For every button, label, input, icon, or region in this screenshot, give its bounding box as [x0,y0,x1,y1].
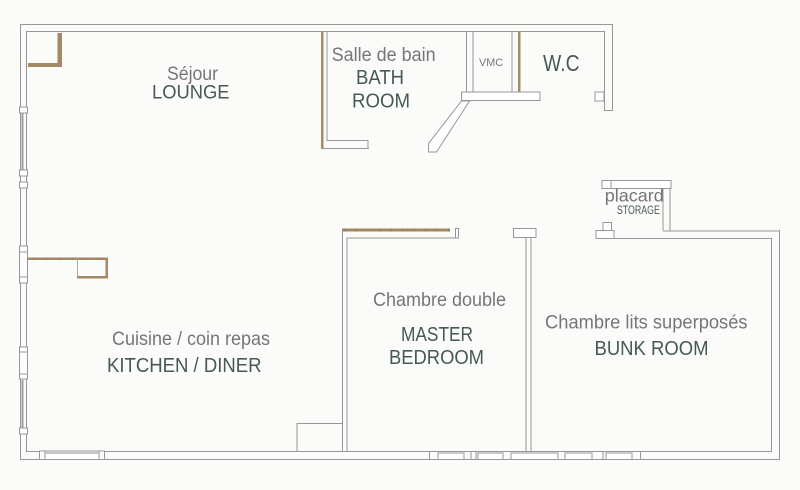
svg-text:Cuisine / coin repas: Cuisine / coin repas [112,329,270,350]
svg-text:LOUNGE: LOUNGE [152,82,230,104]
svg-text:STORAGE: STORAGE [617,205,660,217]
svg-text:KITCHEN / DINER: KITCHEN / DINER [107,355,262,377]
svg-text:ROOM: ROOM [352,91,410,113]
svg-text:VMC: VMC [479,57,503,69]
svg-text:BATH: BATH [356,67,404,89]
svg-text:BUNK ROOM: BUNK ROOM [595,338,709,360]
svg-text:Salle de bain: Salle de bain [332,45,436,66]
svg-text:BEDROOM: BEDROOM [389,347,484,369]
svg-text:MASTER: MASTER [401,324,473,346]
svg-text:W.C: W.C [543,50,580,76]
svg-text:Chambre double: Chambre double [373,290,506,311]
svg-text:Chambre lits superposés: Chambre lits superposés [545,313,748,334]
svg-text:placard: placard [605,186,664,206]
